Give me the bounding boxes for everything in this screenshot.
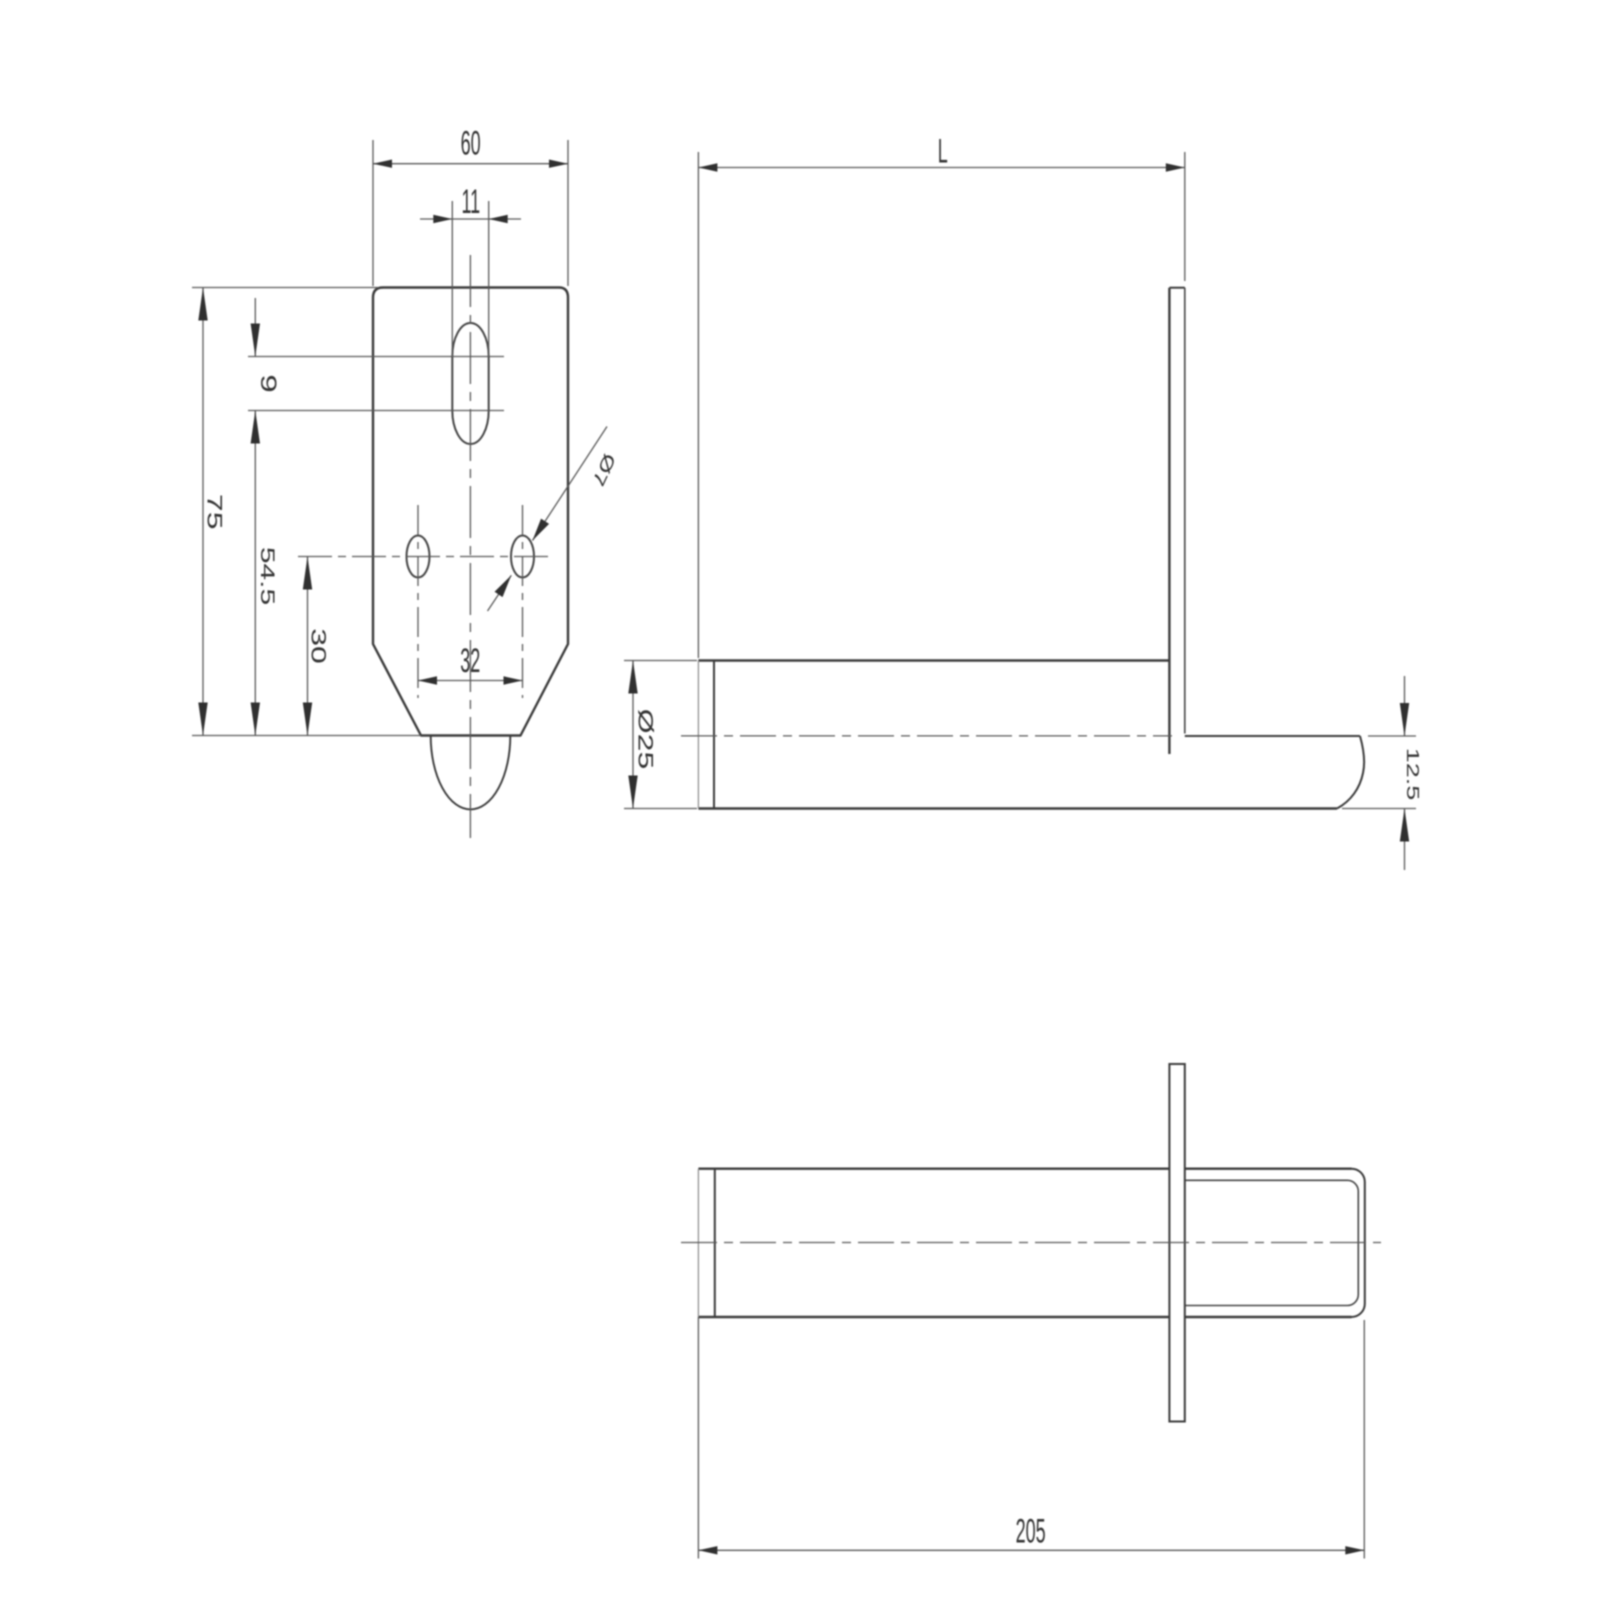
svg-text:75: 75 xyxy=(203,494,227,530)
svg-text:205: 205 xyxy=(1016,1511,1046,1550)
svg-text:9: 9 xyxy=(256,374,280,392)
svg-text:11: 11 xyxy=(461,182,480,221)
svg-text:12.5: 12.5 xyxy=(1403,748,1423,801)
svg-text:32: 32 xyxy=(460,641,480,680)
svg-text:30: 30 xyxy=(307,628,331,664)
svg-text:Ø25: Ø25 xyxy=(634,709,658,769)
svg-text:L: L xyxy=(938,131,948,170)
svg-text:54.5: 54.5 xyxy=(256,547,278,605)
svg-text:60: 60 xyxy=(461,123,481,162)
